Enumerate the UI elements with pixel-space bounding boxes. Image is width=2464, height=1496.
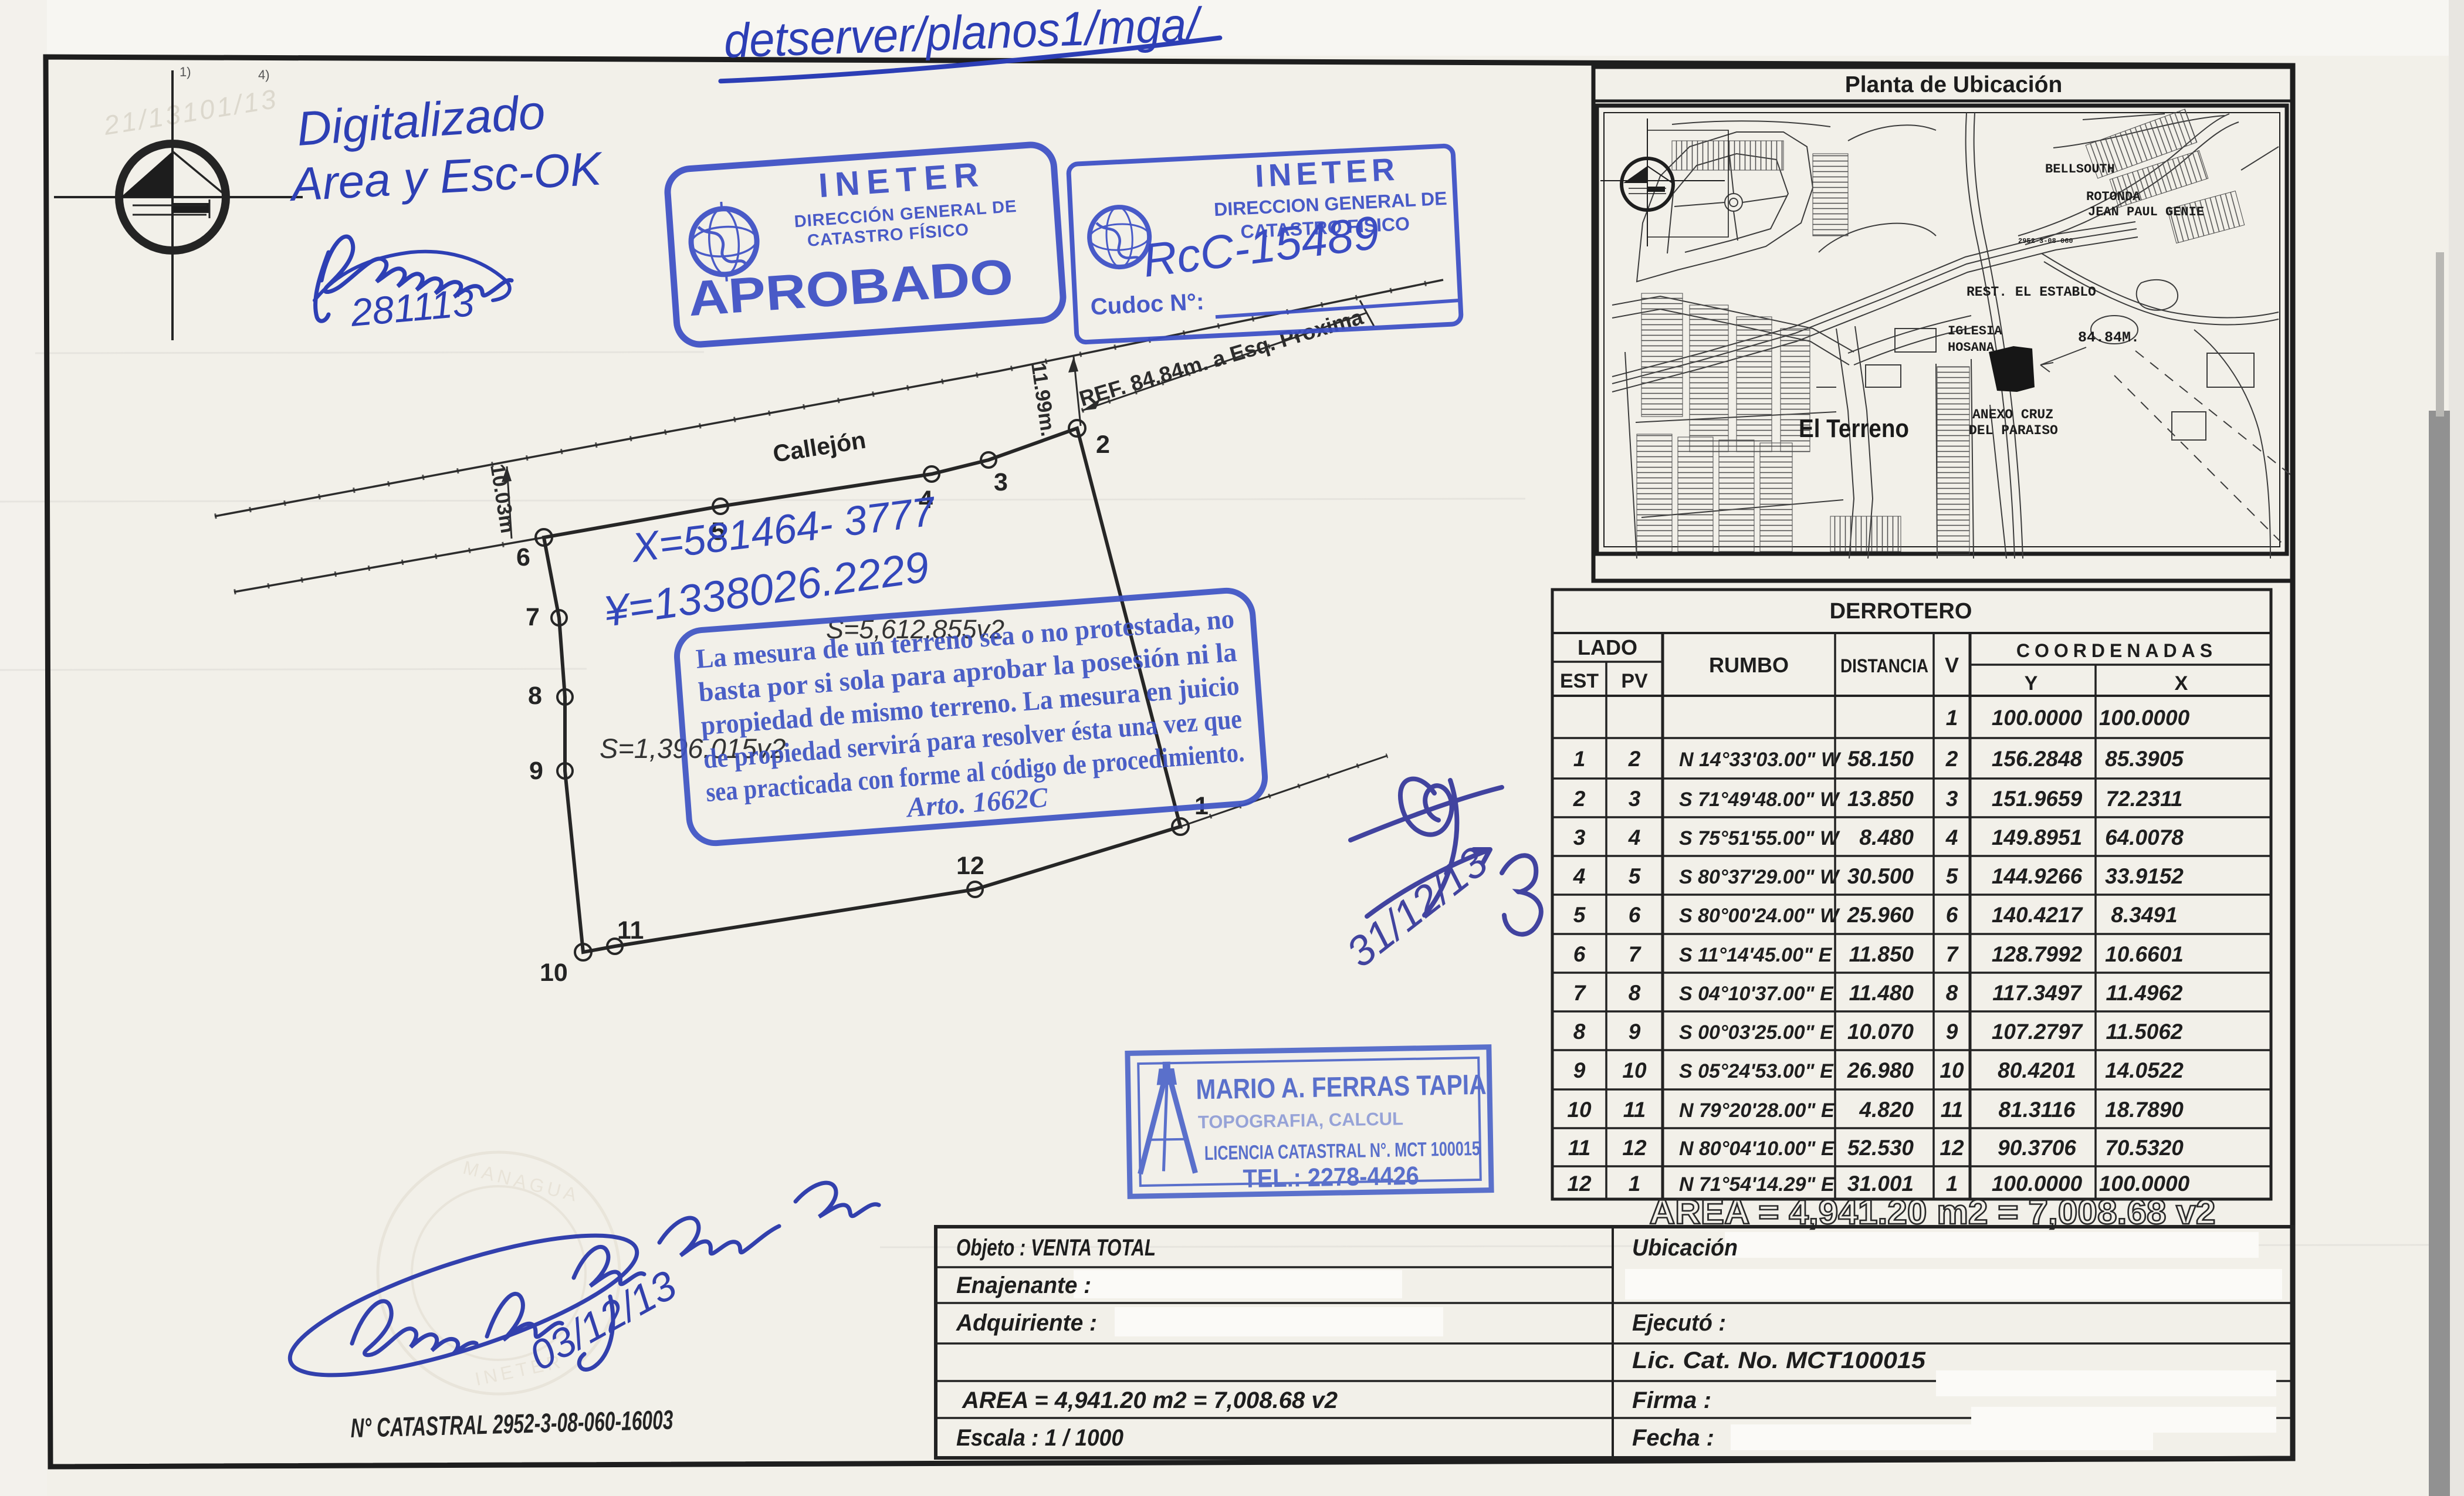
svg-text:9: 9: [529, 757, 543, 785]
svg-text:10: 10: [1940, 1058, 1964, 1082]
svg-text:8: 8: [1573, 1020, 1586, 1044]
svg-text:AREA = 4,941.20 m2 = 7,00: AREA = 4,941.20 m2 = 7,008.68 v2: [962, 1387, 1338, 1413]
svg-text:2: 2: [1573, 787, 1586, 811]
svg-text:26.980: 26.980: [1847, 1058, 1914, 1082]
svg-text:156.2848: 156.2848: [1992, 747, 2083, 771]
svg-text:S 05°24'53.00" E: S 05°24'53.00" E: [1679, 1060, 1834, 1082]
svg-text:6: 6: [1629, 903, 1641, 927]
svg-text:140.4217: 140.4217: [1992, 903, 2084, 927]
svg-text:2: 2: [1628, 747, 1641, 771]
svg-text:BELLSOUTH: BELLSOUTH: [2045, 162, 2115, 177]
svg-text:N 80°04'10.00" E: N 80°04'10.00" E: [1679, 1138, 1835, 1160]
svg-text:1: 1: [1946, 706, 1958, 730]
svg-text:8.480: 8.480: [1859, 825, 1914, 849]
svg-text:5: 5: [1629, 864, 1641, 888]
svg-text:LADO: LADO: [1578, 635, 1637, 659]
svg-text:18.7890: 18.7890: [2105, 1098, 2184, 1122]
svg-text:25.960: 25.960: [1847, 903, 1914, 927]
svg-text:S 00°03'25.00" E: S 00°03'25.00" E: [1679, 1021, 1834, 1044]
svg-text:11: 11: [1941, 1098, 1963, 1122]
svg-text:COORDENADAS: COORDENADAS: [2016, 640, 2217, 661]
svg-text:12: 12: [1567, 1172, 1592, 1196]
svg-text:149.8951: 149.8951: [1992, 825, 2082, 849]
svg-text:12: 12: [956, 852, 984, 880]
svg-text:Escala : 1 / 1000: Escala : 1 / 1000: [956, 1425, 1123, 1451]
svg-text:12: 12: [1940, 1136, 1964, 1160]
svg-text:4): 4): [258, 67, 270, 82]
svg-text:2: 2: [1945, 747, 1958, 771]
svg-text:N 79°20'28.00" E: N 79°20'28.00" E: [1679, 1099, 1835, 1122]
svg-text:2: 2: [1096, 431, 1110, 459]
svg-text:6: 6: [1946, 903, 1958, 927]
svg-text:Lic. Cat. No. MCT100015: Lic. Cat. No. MCT100015: [1632, 1348, 1926, 1373]
svg-text:107.2797: 107.2797: [1992, 1020, 2084, 1044]
svg-text:13.850: 13.850: [1847, 787, 1914, 811]
svg-text:8: 8: [1629, 981, 1641, 1005]
svg-text:5: 5: [1946, 864, 1959, 888]
svg-text:10.070: 10.070: [1847, 1020, 1914, 1044]
svg-text:128.7992: 128.7992: [1992, 942, 2083, 966]
svg-text:3: 3: [1573, 825, 1586, 849]
svg-text:9: 9: [1946, 1020, 1958, 1044]
svg-text:100.0000: 100.0000: [2099, 1172, 2190, 1196]
svg-text:10: 10: [1567, 1098, 1592, 1122]
svg-text:10.6601: 10.6601: [2105, 942, 2184, 966]
svg-text:11.4962: 11.4962: [2106, 981, 2183, 1005]
svg-text:TOPOGRAFIA, CALCUL: TOPOGRAFIA, CALCUL: [1198, 1108, 1404, 1132]
svg-text:V: V: [1945, 653, 1959, 677]
svg-text:Adquiriente :: Adquiriente :: [956, 1310, 1097, 1336]
svg-text:5: 5: [1573, 903, 1586, 927]
svg-text:HOSANA: HOSANA: [1948, 340, 1995, 355]
svg-text:Ejecutó :: Ejecutó :: [1632, 1310, 1726, 1336]
svg-text:30.500: 30.500: [1847, 864, 1914, 888]
svg-text:10: 10: [1622, 1058, 1647, 1082]
svg-text:100.0000: 100.0000: [1992, 1172, 2083, 1196]
svg-text:4: 4: [1628, 825, 1641, 849]
svg-text:11: 11: [1568, 1136, 1590, 1160]
svg-text:EST: EST: [1560, 670, 1599, 692]
svg-text:81.3116: 81.3116: [1999, 1098, 2076, 1122]
svg-text:72.2311: 72.2311: [2106, 787, 2183, 811]
svg-text:11.480: 11.480: [1849, 981, 1914, 1005]
svg-text:64.0078: 64.0078: [2105, 825, 2184, 849]
svg-text:12: 12: [1622, 1136, 1647, 1160]
svg-text:1: 1: [1946, 1172, 1958, 1196]
svg-text:100.0000: 100.0000: [2099, 706, 2190, 730]
svg-text:84.84M.: 84.84M.: [2078, 329, 2140, 346]
svg-text:8: 8: [1946, 981, 1958, 1005]
svg-text:9: 9: [1573, 1058, 1586, 1082]
svg-text:3: 3: [994, 468, 1008, 496]
svg-text:4: 4: [1573, 864, 1586, 888]
svg-text:ROTONDA: ROTONDA: [2086, 189, 2141, 204]
svg-text:DERROTERO: DERROTERO: [1830, 599, 1972, 624]
svg-text:11: 11: [617, 916, 644, 945]
svg-text:14.0522: 14.0522: [2105, 1058, 2184, 1082]
svg-text:4.820: 4.820: [1859, 1098, 1914, 1122]
svg-text:Ubicación: Ubicación: [1632, 1235, 1738, 1261]
svg-text:N 71°54'14.29" E: N 71°54'14.29" E: [1679, 1173, 1835, 1196]
svg-text:11.5062: 11.5062: [2106, 1020, 2183, 1044]
svg-text:JEAN PAUL GENIE: JEAN PAUL GENIE: [2088, 205, 2204, 219]
svg-text:Enajenante :: Enajenante :: [956, 1272, 1091, 1298]
svg-text:6: 6: [1573, 942, 1586, 966]
svg-text:7: 7: [1629, 942, 1642, 966]
svg-text:2952-3-08-060: 2952-3-08-060: [2018, 237, 2073, 245]
svg-text:1: 1: [1629, 1172, 1641, 1196]
svg-text:11: 11: [1623, 1098, 1646, 1122]
svg-text:Y: Y: [2025, 672, 2038, 695]
svg-text:100.0000: 100.0000: [1992, 706, 2083, 730]
svg-text:N 14°33'03.00" W: N 14°33'03.00" W: [1679, 749, 1842, 771]
svg-text:S 80°37'29.00" W: S 80°37'29.00" W: [1679, 866, 1840, 888]
svg-text:ANEXO CRUZ: ANEXO CRUZ: [1972, 407, 2053, 422]
svg-text:58.150: 58.150: [1847, 747, 1914, 771]
svg-text:DISTANCIA: DISTANCIA: [1840, 655, 1928, 676]
svg-text:8.3491: 8.3491: [2111, 903, 2177, 927]
svg-text:85.3905: 85.3905: [2105, 747, 2184, 771]
svg-text:33.9152: 33.9152: [2105, 864, 2184, 888]
svg-text:S 04°10'37.00" E: S 04°10'37.00" E: [1679, 983, 1834, 1005]
svg-text:10: 10: [540, 959, 568, 987]
svg-text:80.4201: 80.4201: [1998, 1058, 2076, 1082]
svg-text:90.3706: 90.3706: [1998, 1136, 2076, 1160]
svg-text:151.9659: 151.9659: [1992, 787, 2083, 811]
svg-text:S 11°14'45.00" E: S 11°14'45.00" E: [1679, 944, 1833, 966]
svg-text:3: 3: [1946, 787, 1958, 811]
svg-text:4: 4: [1945, 825, 1958, 849]
svg-text:REST. EL ESTABLO: REST. EL ESTABLO: [1967, 285, 2096, 300]
svg-text:52.530: 52.530: [1847, 1136, 1914, 1160]
svg-text:S 80°00'24.00" W: S 80°00'24.00" W: [1679, 905, 1840, 927]
svg-text:PV: PV: [1621, 670, 1648, 692]
svg-text:1): 1): [180, 65, 191, 79]
svg-text:DEL PARAISO: DEL PARAISO: [1969, 423, 2058, 438]
svg-text:S 75°51'55.00" W: S 75°51'55.00" W: [1679, 827, 1840, 849]
svg-text:117.3497: 117.3497: [1992, 981, 2083, 1005]
svg-text:7: 7: [526, 603, 540, 631]
svg-text:7: 7: [1946, 942, 1959, 966]
svg-text:3: 3: [1629, 787, 1641, 811]
svg-text:IGLESIA: IGLESIA: [1948, 324, 2002, 339]
svg-text:MARIO A. FERRAS TAPIA: MARIO A. FERRAS TAPIA: [1196, 1069, 1487, 1106]
svg-text:RUMBO: RUMBO: [1709, 653, 1789, 677]
svg-text:9: 9: [1629, 1020, 1641, 1044]
svg-text:Fecha :: Fecha :: [1632, 1425, 1714, 1451]
svg-text:Planta de Ubicación: Planta de Ubicación: [1845, 72, 2063, 97]
svg-text:1: 1: [1573, 747, 1586, 771]
svg-text:X: X: [2175, 672, 2188, 695]
svg-text:TEL.: 2278-4426: TEL.: 2278-4426: [1243, 1162, 1419, 1193]
svg-text:144.9266: 144.9266: [1992, 864, 2083, 888]
svg-text:8: 8: [528, 682, 542, 710]
svg-text:Firma :: Firma :: [1632, 1387, 1711, 1413]
svg-text:7: 7: [1573, 981, 1587, 1005]
svg-text:INETER: INETER: [1254, 152, 1400, 194]
svg-text:S 71°49'48.00" W: S 71°49'48.00" W: [1679, 788, 1840, 811]
svg-text:11.850: 11.850: [1849, 942, 1914, 966]
svg-text:El Terreno: El Terreno: [1799, 414, 1909, 443]
svg-text:31.001: 31.001: [1847, 1172, 1914, 1196]
svg-text:Objeto : VENTA TOTAL: Objeto : VENTA TOTAL: [956, 1235, 1156, 1261]
svg-text:6: 6: [516, 543, 530, 571]
svg-text:70.5320: 70.5320: [2105, 1136, 2184, 1160]
